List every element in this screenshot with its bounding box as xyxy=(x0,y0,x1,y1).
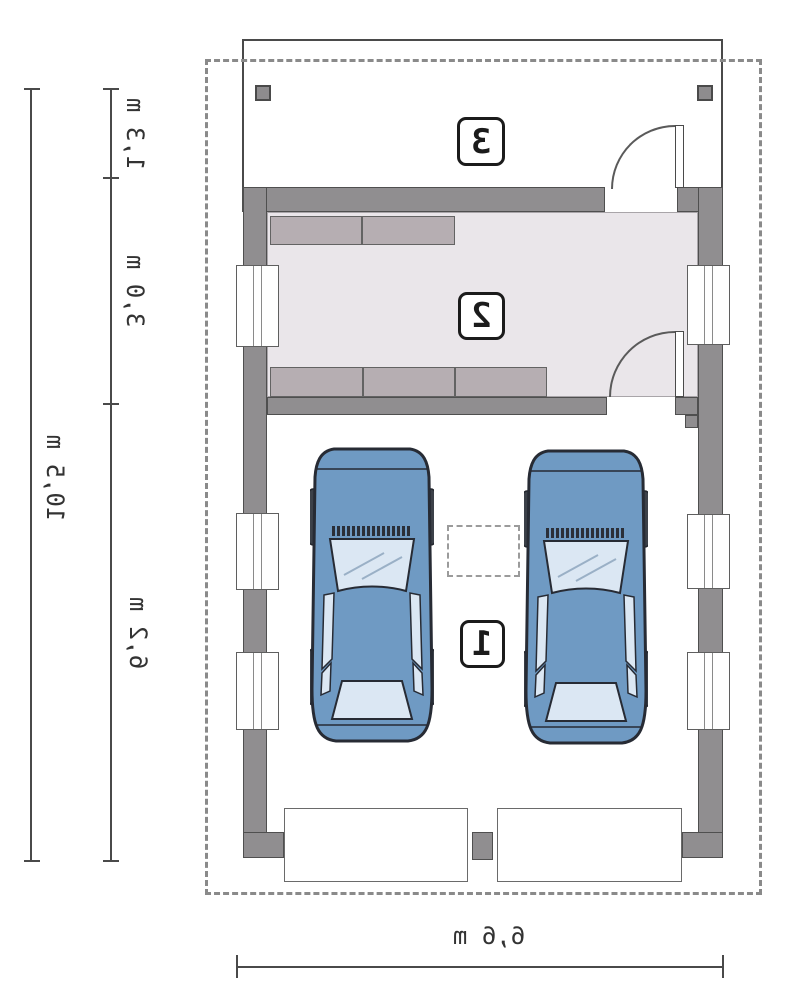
room-2-number: 2 xyxy=(471,299,491,333)
dim-tick xyxy=(103,860,119,862)
dim-tick xyxy=(103,88,119,90)
dim-tick xyxy=(722,955,724,978)
dim-line-overall-height xyxy=(30,90,32,861)
room-1-number: 1 xyxy=(472,627,492,661)
car-2 xyxy=(524,445,648,751)
counter-top-2 xyxy=(362,216,455,245)
dim-tick xyxy=(24,860,40,862)
dim-line-segments xyxy=(110,90,112,861)
reserved-area-outline xyxy=(447,525,520,577)
floor-plan: 3 2 1 1,3 m 3,0 m 6,2 m 10,5 m 6,6 m xyxy=(0,0,801,1000)
dim-label-width: 6,6 m xyxy=(434,922,544,950)
window-right-room2 xyxy=(687,265,730,345)
bottom-wall-left-stub xyxy=(243,832,284,858)
bottom-wall-right-stub xyxy=(682,832,723,858)
garage-door-right xyxy=(497,808,682,882)
car-1 xyxy=(310,443,434,749)
counter-bottom-1 xyxy=(270,367,363,397)
counter-bottom-3 xyxy=(455,367,547,397)
dim-tick xyxy=(103,403,119,405)
window-left-garage-1 xyxy=(236,513,279,590)
partition-wall-left-segment xyxy=(267,397,607,415)
garage-door-left xyxy=(284,808,468,882)
top-wall-left-segment xyxy=(242,187,605,212)
partition-wall-right-segment xyxy=(675,397,698,415)
room-1-badge: 1 xyxy=(460,620,505,668)
dim-label-seg-top: 1,3 m xyxy=(123,84,149,184)
dim-label-seg-mid: 3,0 m xyxy=(123,241,149,341)
dim-label-overall-height: 10,5 m xyxy=(43,428,69,528)
dim-tick xyxy=(236,955,238,978)
door-leaf-porch xyxy=(675,125,684,188)
window-right-garage-1 xyxy=(687,514,730,589)
window-left-room2 xyxy=(236,265,279,347)
window-left-garage-2 xyxy=(236,652,279,730)
dim-tick xyxy=(24,88,40,90)
room-2-badge: 2 xyxy=(458,292,505,340)
counter-top-1 xyxy=(270,216,362,245)
dim-line-width xyxy=(237,966,723,968)
garage-door-pillar xyxy=(472,832,493,860)
room-3-number: 3 xyxy=(471,125,491,159)
dim-tick xyxy=(103,177,119,179)
door-leaf-room2 xyxy=(675,331,684,397)
dim-label-seg-bottom: 6,2 m xyxy=(126,583,152,683)
window-right-garage-2 xyxy=(687,652,730,730)
room-3-badge: 3 xyxy=(457,117,505,166)
counter-bottom-2 xyxy=(363,367,455,397)
partition-wall-step xyxy=(685,415,698,428)
